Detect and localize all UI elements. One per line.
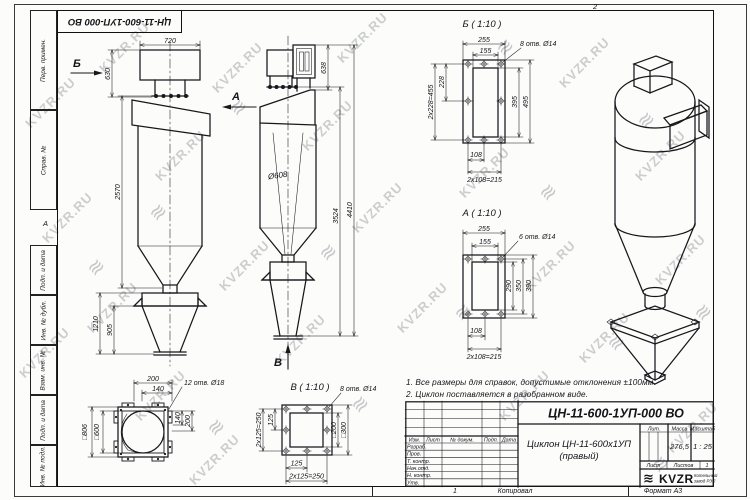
sheet-label: Лист — [646, 463, 661, 469]
section-v-dimensions: 8 отв. Ø14 125 2x125=250 □200 □300 125 2… — [256, 386, 376, 484]
dim-350: 350 — [516, 280, 523, 292]
dim-2x108: 2x108=215 — [466, 354, 502, 361]
isometric-outline — [607, 56, 709, 384]
doc-number: ЦН-11-600-1УП-000 ВО — [548, 407, 684, 421]
note-line-2: 2. Циклон поставляется в разобранном вид… — [406, 390, 712, 399]
sheets-label: Листов — [673, 463, 694, 469]
dim-2570: 2570 — [115, 184, 122, 201]
col-podp: Подп. — [484, 437, 498, 443]
mass-label: Масса — [672, 426, 688, 432]
kvzr-logo-icon: ≋ — [643, 471, 654, 486]
col-doc: № докум. — [450, 437, 474, 443]
footer-format: Формат А3 — [628, 488, 698, 495]
isometric-view — [598, 42, 712, 387]
holes-note-12otv: 12 отв. Ø18 — [184, 380, 224, 387]
section-a-title: А ( 1:10 ) — [461, 208, 501, 219]
row-razrab: Разраб. — [407, 445, 427, 451]
section-b-dimensions: 255 155 228 2x228=455 395 495 108 2x108=… — [428, 37, 556, 184]
footer-kopiroval: Копировал — [480, 488, 550, 495]
dim-2x108: 2x108=215 — [466, 177, 502, 184]
product-name-line2: (правый) — [559, 451, 598, 462]
dim-1210: 1210 — [93, 316, 100, 332]
dim-255: 255 — [477, 226, 490, 233]
dim-255: 255 — [477, 37, 490, 44]
dim-sq806: □806 — [82, 424, 89, 440]
logo-subtext-1: Котельный — [694, 473, 718, 478]
section-v-view: В ( 1:10 ) 8 отв. Ø14 125 2x125=250 □200… — [245, 376, 405, 488]
kvzr-logo-text: KVZR — [659, 472, 694, 486]
section-a-view: А ( 1:10 ) 255 155 290 350 390 108 — [420, 200, 572, 360]
margin-label: Справ. № — [40, 145, 47, 175]
section-b-view: Б ( 1:10 ) 255 155 228 2x228=455 395 — [420, 14, 572, 184]
dim-4410: 4410 — [347, 202, 354, 218]
arrow-label-v: В — [274, 357, 282, 369]
note-line-1: 1. Все размеры для справок, допустимые о… — [406, 378, 712, 387]
row-tkontr: Т. контр. — [407, 459, 430, 465]
dim-140-top: 140 — [152, 386, 164, 393]
dim-108: 108 — [470, 328, 482, 335]
section-v-title: В ( 1:10 ) — [290, 382, 329, 393]
footer-number: 1 — [453, 488, 457, 495]
footer-divider — [372, 487, 373, 496]
row-prov: Пров. — [407, 452, 421, 458]
dim-638: 638 — [321, 62, 328, 74]
margin-box-podp-data-1: Подп. и дата — [30, 245, 57, 295]
margin-label: Инв. № подл. — [40, 446, 47, 486]
row-nachotd: Нач.отд. — [407, 466, 430, 472]
dim-630: 630 — [105, 68, 112, 80]
dim-395: 395 — [512, 96, 519, 108]
top-stamp: ЦН-11-600-1УП-000 ВО — [57, 10, 182, 33]
product-name-line1: Циклон ЦН-11-600х1УП — [527, 439, 631, 450]
col-izm: Изм. — [409, 437, 421, 443]
fold-mark-top: 2 — [593, 2, 597, 11]
col-list: Лист — [425, 437, 440, 443]
dim-155: 155 — [480, 48, 492, 55]
dim-108: 108 — [470, 152, 482, 159]
margin-label: Взам. инв. № — [40, 350, 47, 390]
dim-905: 905 — [107, 324, 114, 336]
section-b-outline — [463, 60, 505, 144]
dim-125-bottom: 125 — [291, 461, 303, 468]
margin-label: Подп. и дата — [40, 400, 47, 441]
logo-subtext-2: завод РЭП — [693, 479, 716, 484]
margin-label: Перв. примен. — [40, 38, 47, 81]
dim-228: 228 — [439, 76, 446, 89]
title-block: Изм. Лист № докум. Подп. Дата Разраб. Пр… — [405, 401, 714, 487]
dim-200-right: 200 — [185, 415, 192, 428]
drawing-sheet: KVZR.RU KVZR.RU KVZR.RU KVZR.RU KVZR.RU … — [0, 0, 750, 500]
dim-sq600: □600 — [94, 424, 101, 440]
arrow-label-a: А — [231, 91, 240, 103]
scale-value: 1 : 25 — [693, 442, 713, 451]
margin-box-vzam-inv: Взам. инв. № — [30, 345, 57, 395]
col-data: Дата — [501, 437, 516, 443]
dim-2x228: 2x228=455 — [428, 84, 435, 120]
fold-mark-left: А — [43, 219, 48, 228]
dim-2x125-left: 2x125=250 — [256, 412, 263, 448]
arrow-label-b: Б — [73, 58, 81, 70]
margin-box-perv-primen: Перв. примен. — [30, 10, 57, 110]
margin-box-inv-dubl: Инв. № дубл. — [30, 295, 57, 345]
mass-value: 276,5 — [669, 442, 690, 451]
dim-155: 155 — [479, 239, 491, 246]
dim-140-right: 140 — [175, 412, 182, 424]
top-stamp-text: ЦН-11-600-1УП-000 ВО — [68, 16, 171, 27]
scale-label: Масштаб — [690, 426, 716, 432]
holes-note-8otv-v: 8 отв. Ø14 — [340, 386, 376, 393]
margin-box-podp-data-2: Подп. и дата — [30, 395, 57, 445]
section-v-outline — [282, 405, 332, 455]
dim-sq300: □300 — [341, 422, 348, 438]
top-view: 200 140 12 отв. Ø18 140 200 □806 □600 — [72, 374, 248, 486]
front-view-dimensions: 638 3524 4410 — [296, 45, 358, 336]
section-a-dimensions: 255 155 290 350 390 108 2x108=215 6 отв.… — [463, 226, 555, 361]
top-view-outline — [114, 403, 172, 461]
lit-label: Лит. — [647, 426, 661, 432]
dim-sq200: □200 — [331, 422, 338, 438]
margin-label: Инв. № дубл. — [40, 300, 47, 340]
top-view-dimensions: 200 140 12 отв. Ø18 140 200 □806 □600 — [82, 376, 224, 457]
front-view: Ø608 638 3524 4410 В — [240, 28, 420, 380]
section-a-outline — [463, 255, 505, 318]
holes-note-6otv: 6 отв. Ø14 — [519, 234, 555, 241]
sheets-value: 1 — [706, 463, 709, 469]
dim-720: 720 — [164, 38, 176, 45]
holes-note-8otv: 8 отв. Ø14 — [520, 41, 556, 48]
dim-390: 390 — [526, 280, 533, 292]
margin-box-inv-podl: Инв. № подл. — [30, 445, 57, 487]
dim-2x125-bottom: 2x125=250 — [288, 474, 324, 481]
dim-290: 290 — [506, 280, 513, 293]
row-nkontr: Н. контр. — [407, 473, 431, 479]
margin-label: Подп. и дата — [40, 250, 47, 291]
dim-3524: 3524 — [333, 208, 340, 224]
section-b-title: Б ( 1:10 ) — [463, 19, 502, 30]
margin-box-sprav: Справ. № — [30, 110, 57, 210]
dim-495: 495 — [523, 96, 530, 108]
dia-608: Ø608 — [266, 170, 288, 182]
dim-125-left: 125 — [268, 414, 275, 426]
dim-200-top: 200 — [146, 376, 159, 383]
row-utv: Утв. — [406, 480, 419, 486]
view-arrow-v: В — [274, 344, 291, 369]
view-arrow-b: Б — [71, 58, 103, 76]
